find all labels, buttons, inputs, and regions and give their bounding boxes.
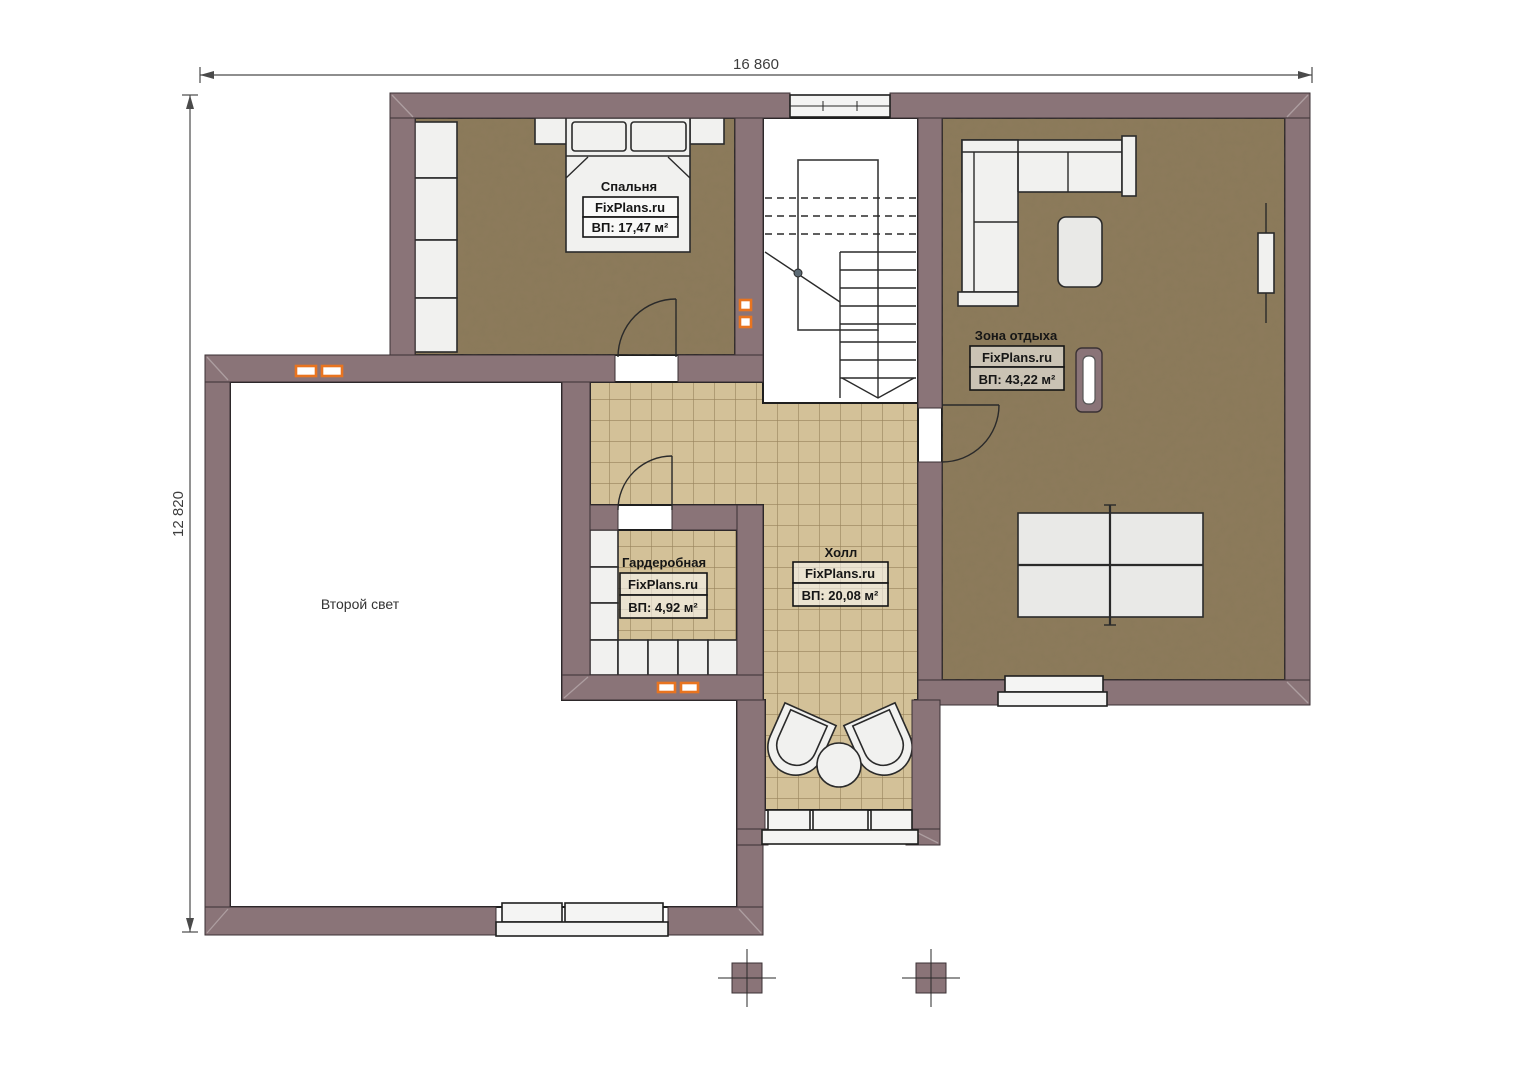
window-stairwell-top — [790, 95, 890, 117]
svg-text:Гардеробная: Гардеробная — [622, 555, 706, 570]
column-post-left — [718, 949, 776, 1007]
svg-text:Холл: Холл — [825, 545, 858, 560]
column-post-right — [902, 949, 960, 1007]
nightstand-left — [535, 118, 567, 144]
window-lounge-bottom — [998, 676, 1107, 706]
window-void-bottom — [496, 903, 668, 936]
svg-text:FixPlans.ru: FixPlans.ru — [628, 577, 698, 592]
bedroom-closet — [415, 122, 457, 352]
svg-text:ВП: 20,08 м²: ВП: 20,08 м² — [802, 588, 879, 603]
floor-plan-page: Спальня FixPlans.ru ВП: 17,47 м² Зона от… — [0, 0, 1528, 1080]
svg-text:Спальня: Спальня — [601, 179, 657, 194]
label-lounge: Зона отдыха FixPlans.ru ВП: 43,22 м² — [970, 328, 1064, 390]
dimension-top: 16 860 — [200, 56, 1312, 83]
fireplace-vent — [1076, 348, 1102, 412]
svg-text:16 860: 16 860 — [733, 56, 779, 73]
svg-text:FixPlans.ru: FixPlans.ru — [805, 566, 875, 581]
svg-text:FixPlans.ru: FixPlans.ru — [982, 350, 1052, 365]
svg-text:ВП: 17,47 м²: ВП: 17,47 м² — [592, 220, 669, 235]
window-bay — [762, 810, 918, 844]
dimension-left: 12 820 — [170, 95, 198, 932]
nightstand-right — [690, 118, 724, 144]
label-wardrobe: Гардеробная FixPlans.ru ВП: 4,92 м² — [620, 555, 707, 618]
svg-text:ВП: 4,92 м²: ВП: 4,92 м² — [628, 600, 698, 615]
svg-text:ВП: 43,22 м²: ВП: 43,22 м² — [979, 372, 1056, 387]
label-void: Второй свет — [321, 596, 400, 612]
table-tennis-table — [1018, 505, 1203, 625]
svg-text:Зона отдыха: Зона отдыха — [975, 328, 1058, 343]
svg-text:Второй свет: Второй свет — [321, 596, 400, 612]
svg-text:12 820: 12 820 — [170, 491, 187, 537]
coffee-table — [1058, 217, 1102, 287]
svg-text:FixPlans.ru: FixPlans.ru — [595, 200, 665, 215]
round-table — [817, 743, 861, 787]
floor-plan-drawing: Спальня FixPlans.ru ВП: 17,47 м² Зона от… — [0, 0, 1528, 1080]
